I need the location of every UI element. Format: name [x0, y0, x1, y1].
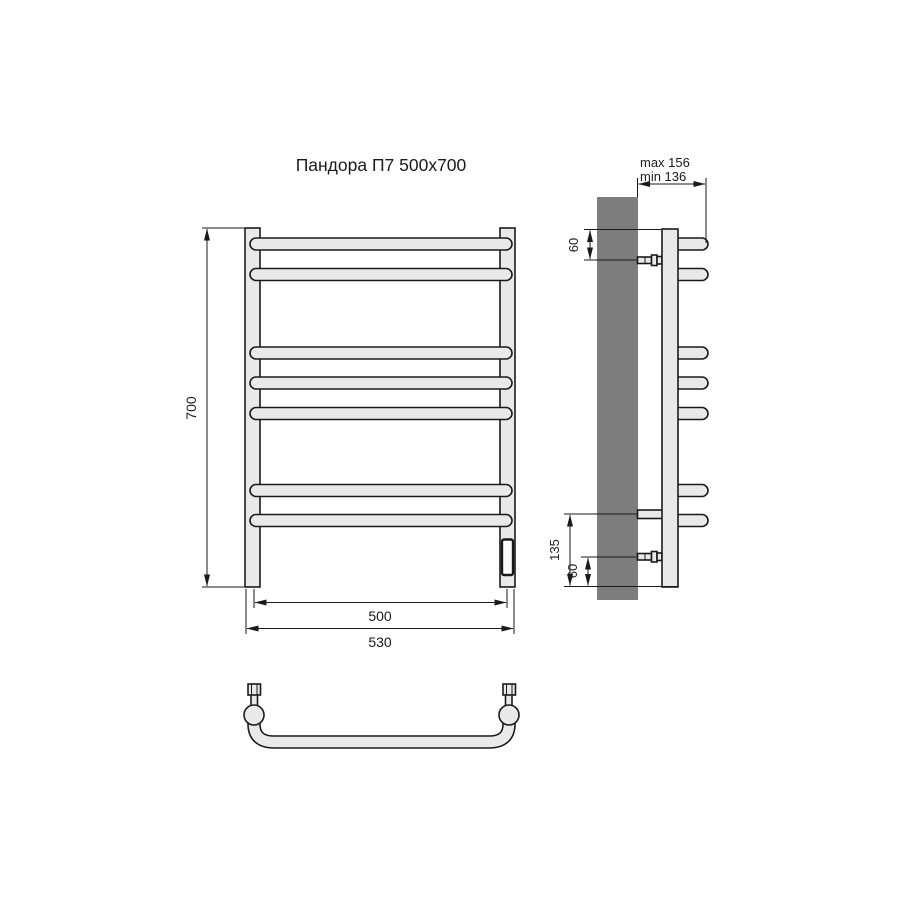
wall-bracket	[638, 510, 663, 519]
front-view: 700 500 530	[183, 228, 515, 650]
towel-bar	[250, 377, 512, 389]
mounting-screw-top	[638, 255, 663, 266]
screw-collar	[652, 552, 658, 563]
side-view: max 156 min 136 60 135 60	[547, 155, 708, 600]
dim-label-overall-width: 530	[368, 634, 392, 650]
fitting-head	[503, 684, 516, 695]
fitting-head	[248, 684, 261, 695]
side-post	[662, 229, 678, 587]
dim-axis-width: 500	[254, 589, 507, 624]
dim-label-depth-max: max 156	[640, 155, 690, 170]
technical-drawing: Пандора П7 500x700 700 500	[0, 0, 900, 900]
top-view	[244, 684, 519, 742]
drawing-title: Пандора П7 500x700	[296, 155, 467, 175]
towel-bar	[250, 269, 512, 281]
dim-label-height: 700	[183, 396, 199, 420]
towel-bar	[250, 347, 512, 359]
dim-label-bottom-offset: 60	[565, 564, 580, 578]
towel-bar	[250, 408, 512, 420]
dim-height: 700	[183, 228, 244, 587]
mounting-screw-bottom	[638, 552, 663, 563]
top-bar	[254, 711, 509, 742]
towel-bar	[250, 515, 512, 527]
dim-label-top-offset: 60	[566, 238, 581, 252]
towel-bar	[250, 485, 512, 497]
power-switch-box	[502, 540, 513, 576]
dim-label-depth-min: min 136	[640, 169, 686, 184]
drawing-canvas: Пандора П7 500x700 700 500	[0, 0, 900, 900]
wall	[597, 197, 638, 600]
post-cross-section	[499, 705, 519, 725]
towel-bar	[250, 238, 512, 250]
dim-label-axis-width: 500	[368, 608, 392, 624]
post-cross-section	[244, 705, 264, 725]
dim-label-bottom-span: 135	[547, 539, 562, 561]
screw-collar	[652, 255, 658, 266]
